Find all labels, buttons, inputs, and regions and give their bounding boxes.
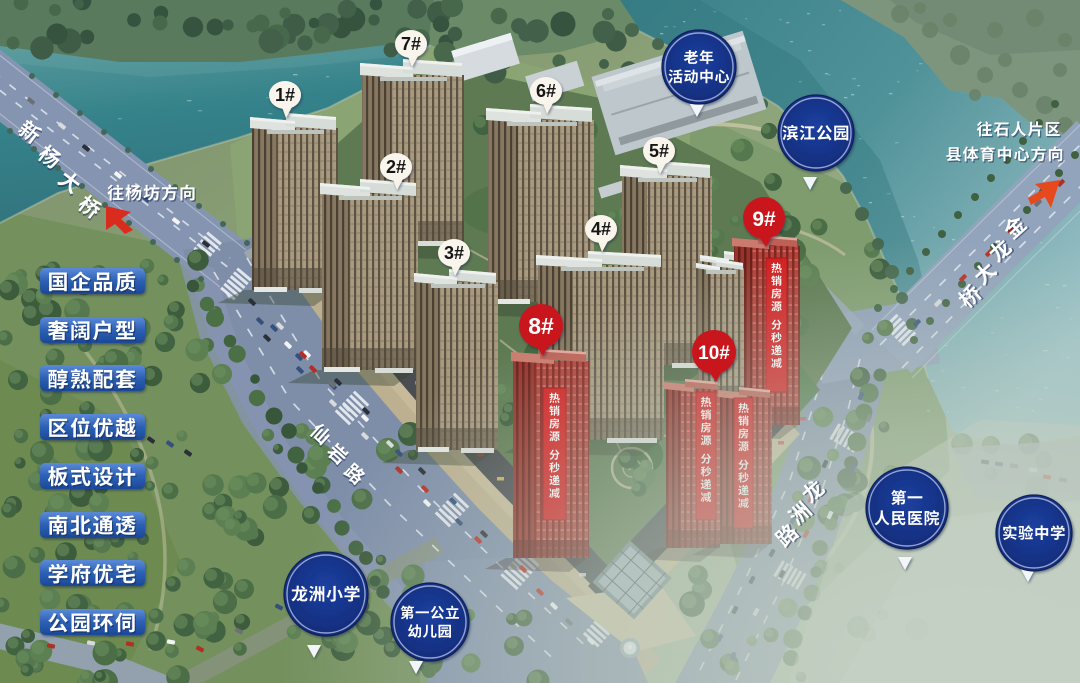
svg-text:8#: 8# xyxy=(528,313,554,339)
svg-text:5#: 5# xyxy=(649,141,669,161)
svg-text:9#: 9# xyxy=(752,208,776,231)
svg-text:3#: 3# xyxy=(444,243,464,263)
svg-text:10#: 10# xyxy=(698,343,730,364)
svg-text:2#: 2# xyxy=(386,157,406,177)
svg-text:1#: 1# xyxy=(275,85,295,105)
svg-text:4#: 4# xyxy=(591,219,611,239)
svg-text:7#: 7# xyxy=(401,34,421,54)
svg-text:6#: 6# xyxy=(536,81,556,101)
